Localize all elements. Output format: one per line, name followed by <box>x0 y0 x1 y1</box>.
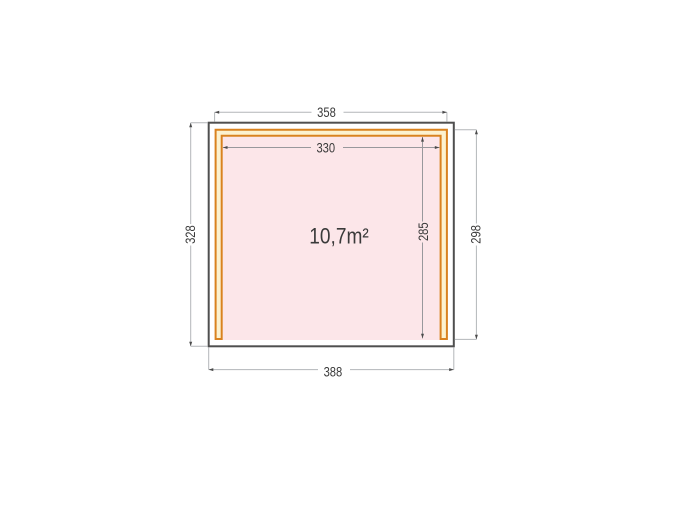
svg-text:328: 328 <box>183 225 198 244</box>
svg-text:388: 388 <box>324 364 343 379</box>
svg-text:10,7m²: 10,7m² <box>309 224 369 249</box>
svg-text:358: 358 <box>317 105 336 120</box>
svg-text:330: 330 <box>316 140 335 155</box>
svg-text:298: 298 <box>468 225 483 244</box>
svg-text:285: 285 <box>416 222 431 241</box>
